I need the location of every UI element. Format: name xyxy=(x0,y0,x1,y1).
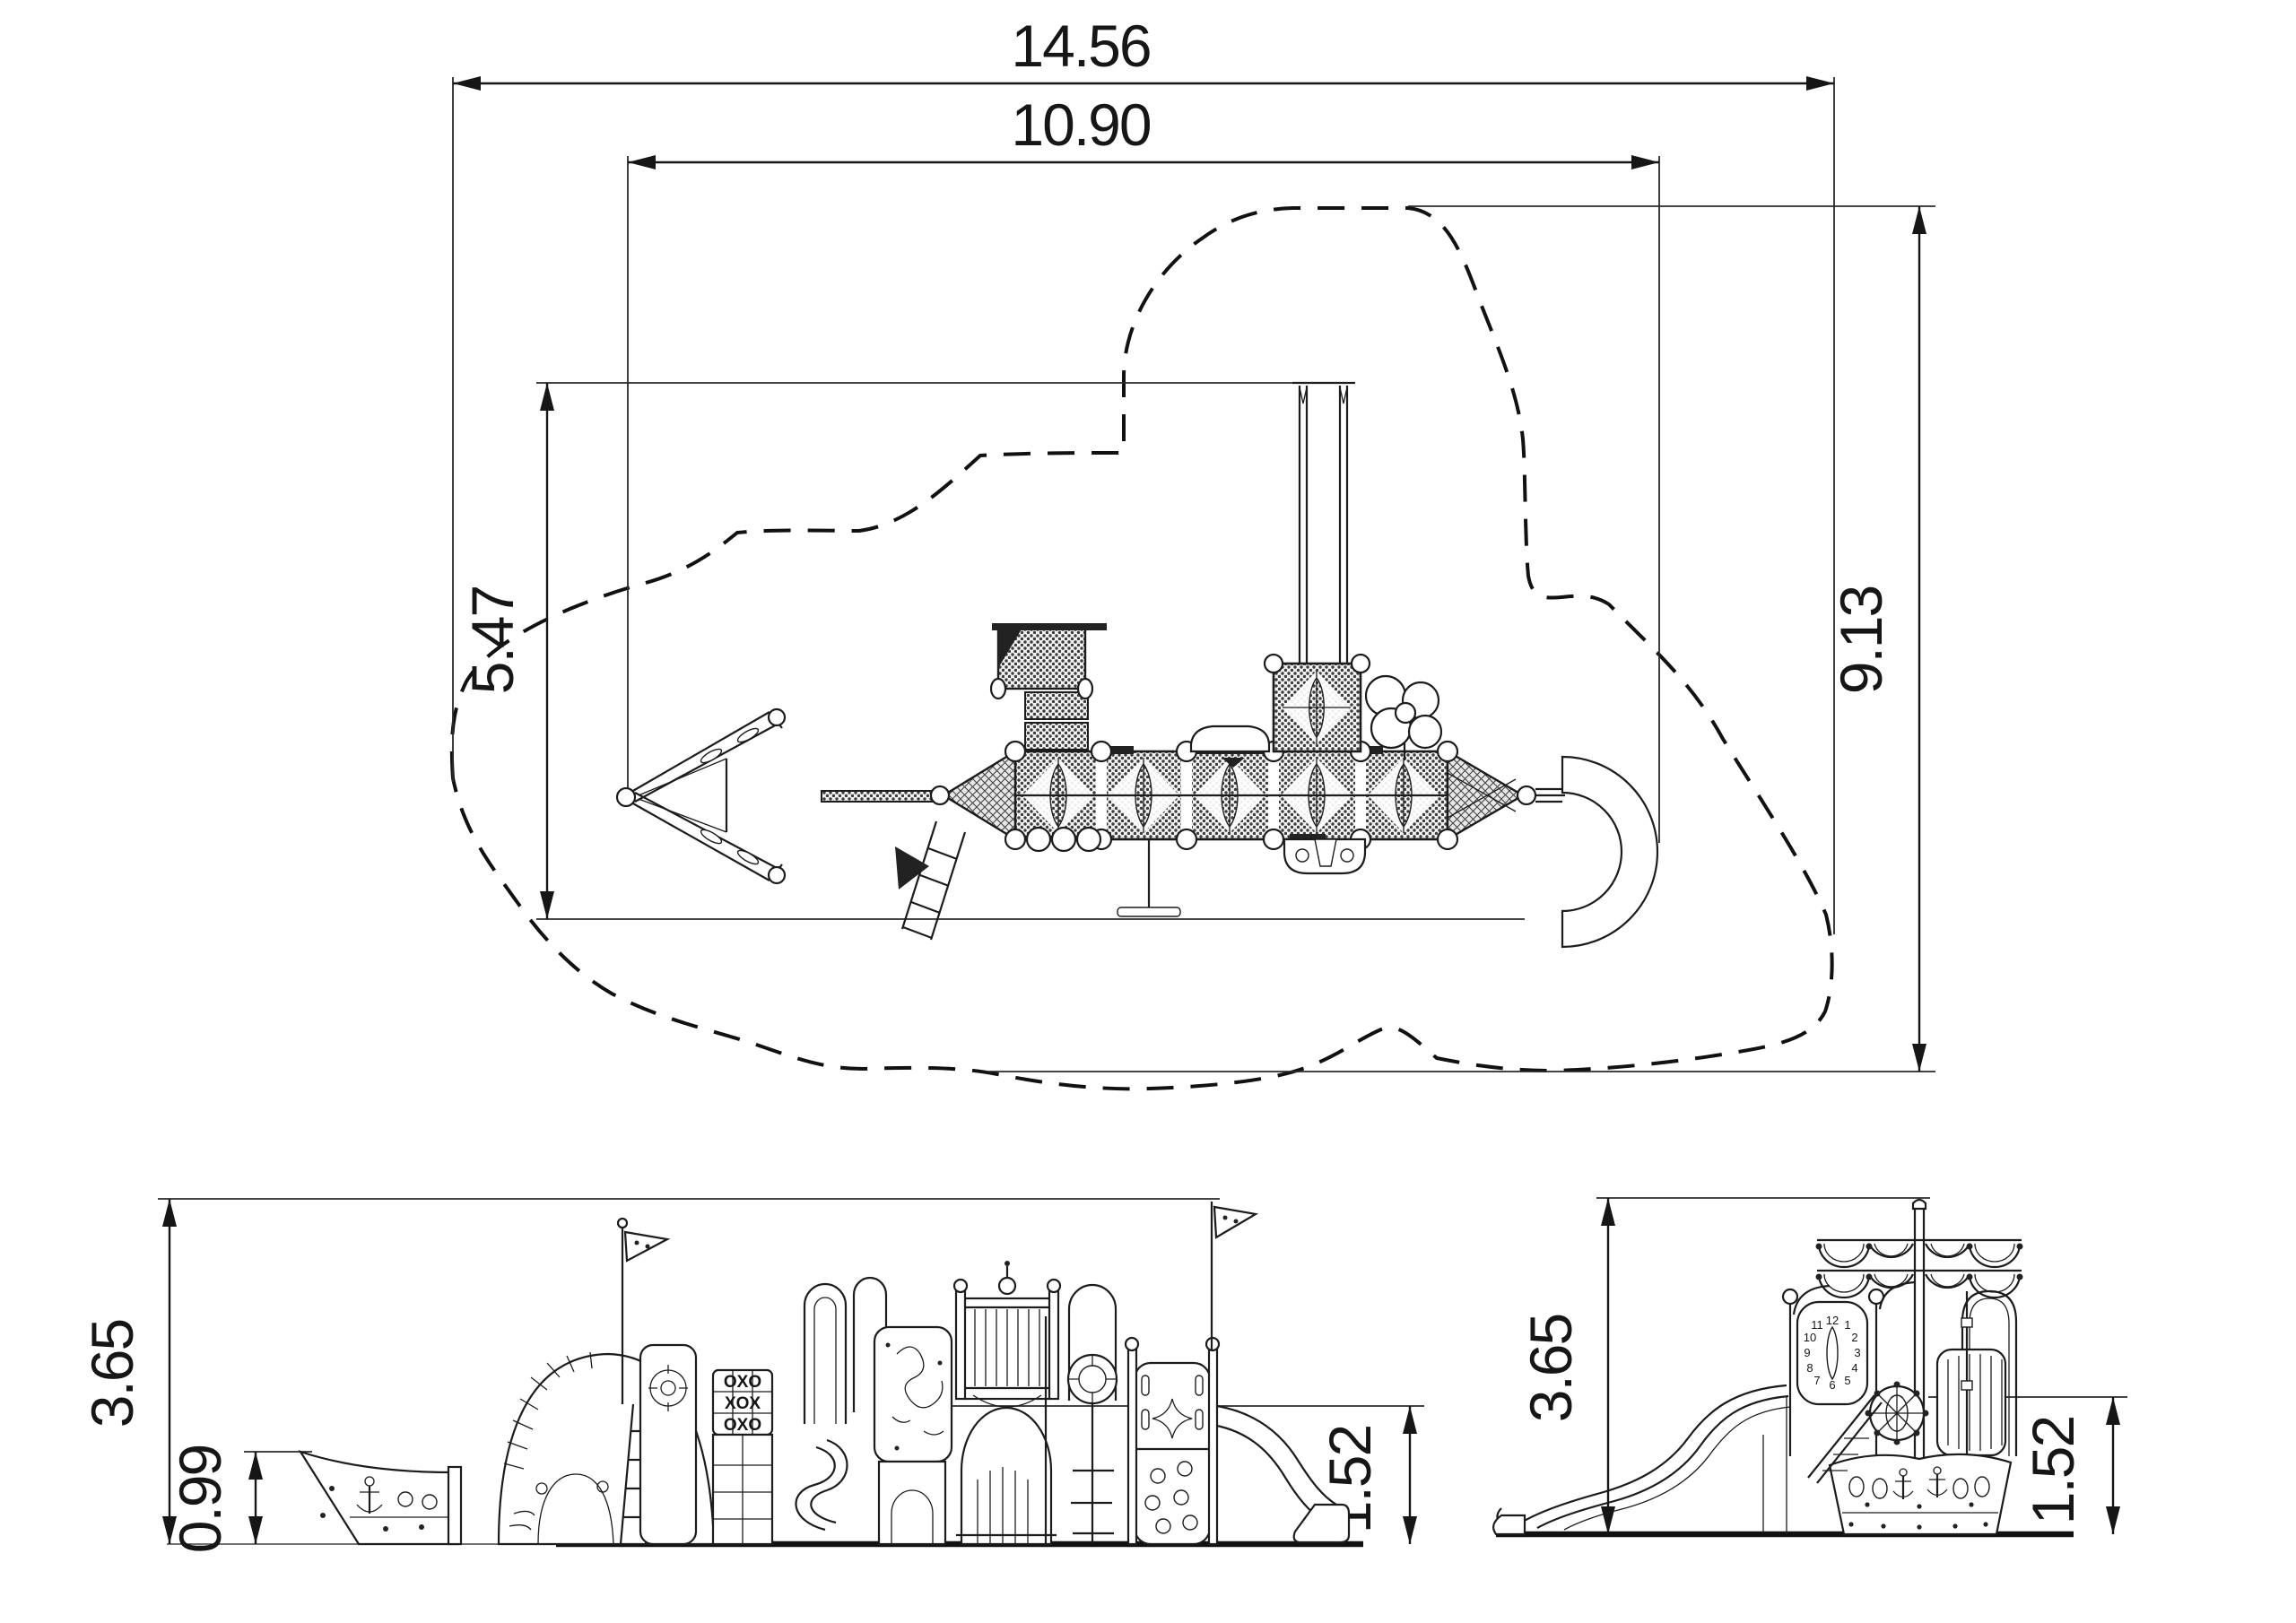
climb-tower xyxy=(1126,1338,1219,1544)
hull-panel xyxy=(1830,1454,2011,1534)
arch-door xyxy=(879,1462,945,1544)
zipline-rails xyxy=(1292,383,1355,664)
canopy-tier-2 xyxy=(1816,1271,2023,1298)
ship-wheel xyxy=(1865,1382,1929,1445)
curved-slide xyxy=(1535,757,1657,947)
play-tower xyxy=(1265,655,1370,751)
clock-digit: 1 xyxy=(1844,1318,1850,1332)
dim-total-width-label: 14.56 xyxy=(1011,13,1150,79)
clock-panel: 12 1 2 3 4 5 6 7 8 9 10 11 xyxy=(1797,1302,1867,1404)
bow-ball xyxy=(931,786,949,804)
clock-digit: 5 xyxy=(1844,1374,1850,1387)
oxo-panel: OXO XOX OXO xyxy=(713,1370,772,1435)
dim-total-depth: 9.13 xyxy=(1828,206,1926,1072)
slat-panel xyxy=(1937,1350,2005,1455)
dim-side-height-label: 3.65 xyxy=(1518,1315,1584,1422)
stern-net xyxy=(1448,751,1523,839)
clock-digit: 4 xyxy=(1851,1361,1857,1375)
clock-digit: 2 xyxy=(1851,1331,1857,1344)
onion-finial xyxy=(999,1261,1015,1294)
drawing-sheet: 14.56 10.90 5.47 9.13 xyxy=(0,0,2296,1623)
bow-ladder xyxy=(895,821,965,940)
flag-pole-right xyxy=(1212,1202,1256,1350)
dim-total-depth-label: 9.13 xyxy=(1828,586,1894,694)
oxo-row-3: OXO xyxy=(724,1416,761,1435)
ring-buoy-panel xyxy=(1068,1285,1117,1403)
dim-play-width: 10.90 xyxy=(628,91,1659,169)
flag-pennant xyxy=(895,846,929,890)
slat-tower xyxy=(954,1261,1060,1407)
swing-a-frame xyxy=(617,709,785,883)
dim-bow-height: 0.99 xyxy=(167,1445,312,1553)
clock-digit: 12 xyxy=(1826,1314,1839,1327)
dim-front-height-label: 3.65 xyxy=(79,1320,145,1428)
clock-digit: 8 xyxy=(1806,1361,1813,1375)
side-elevation: 3.65 1.52 xyxy=(1493,1198,2127,1534)
dim-play-depth-label: 5.47 xyxy=(459,586,526,694)
dim-play-width-label: 10.90 xyxy=(1011,91,1150,158)
clock-digit: 9 xyxy=(1804,1346,1810,1359)
clock-digit: 11 xyxy=(1811,1318,1823,1332)
dim-bow-height-label: 0.99 xyxy=(167,1445,233,1553)
clock-digit: 10 xyxy=(1804,1331,1816,1344)
dim-total-width: 14.56 xyxy=(453,13,1834,91)
safety-zone-outline xyxy=(452,208,1832,1089)
clock-digit: 3 xyxy=(1854,1346,1860,1359)
boat-panel xyxy=(1284,839,1365,873)
hand-rings xyxy=(1027,828,1100,851)
clock-digit: 6 xyxy=(1829,1378,1835,1392)
dim-side-deck-label: 1.52 xyxy=(2020,1417,2086,1524)
s-pipe-climber xyxy=(796,1440,847,1530)
stair-block xyxy=(713,1435,772,1544)
oxo-row-1: OXO xyxy=(724,1373,761,1392)
front-elevation: 3.65 0.99 1.52 xyxy=(79,1199,1424,1553)
oxo-row-2: XOX xyxy=(725,1394,761,1413)
plan-view: 14.56 10.90 5.47 9.13 xyxy=(452,13,1935,1089)
extension-lines xyxy=(453,77,1935,1072)
bridge-tower xyxy=(991,623,1107,750)
swing-pivot-ball xyxy=(617,788,635,806)
stern-ball xyxy=(1518,786,1535,804)
clock-digit: 7 xyxy=(1813,1374,1820,1387)
step-pole xyxy=(1071,1403,1114,1544)
ship-bow-panel xyxy=(300,1452,461,1544)
bowsprit-beam xyxy=(822,791,935,802)
canopy-tier-1 xyxy=(1816,1240,2023,1267)
play-table xyxy=(1118,839,1180,916)
porthole-panel xyxy=(640,1345,696,1544)
loop-climber-1 xyxy=(804,1284,846,1424)
playground-technical-drawing: 14.56 10.90 5.47 9.13 xyxy=(0,0,2296,1623)
portcullis-arch xyxy=(956,1408,1057,1544)
activity-panel xyxy=(874,1327,952,1462)
dim-play-depth: 5.47 xyxy=(459,383,554,919)
bow-net xyxy=(944,751,1015,839)
